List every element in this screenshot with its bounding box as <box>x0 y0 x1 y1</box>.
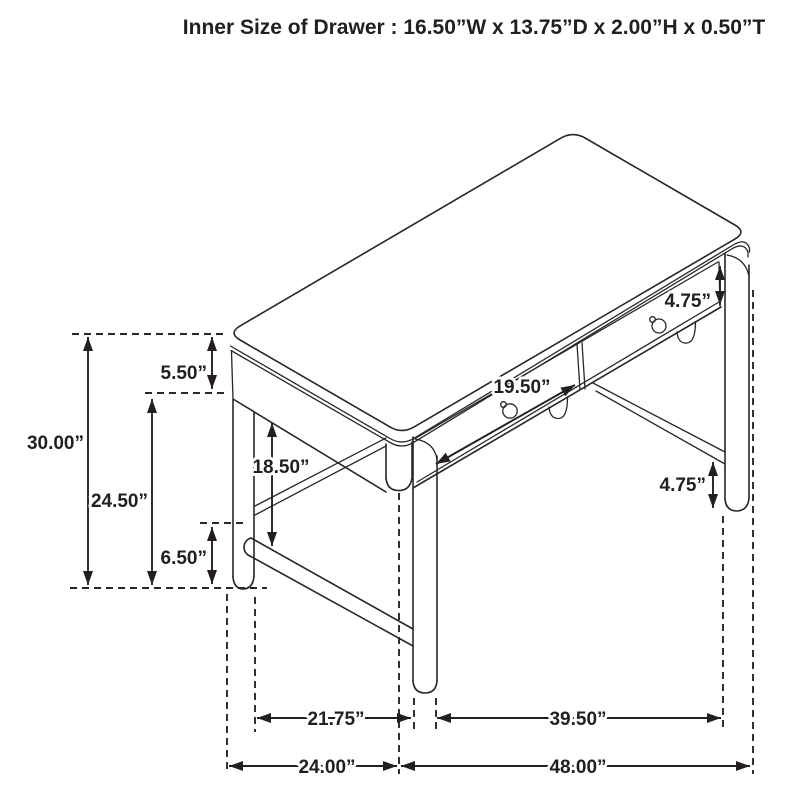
arrowhead-icon <box>147 399 157 413</box>
dimension-label-front-leg-span: 39.50” <box>549 709 606 730</box>
dimension-label-leg-clearance: 18.50” <box>252 457 309 478</box>
front-corner-post <box>386 442 412 491</box>
arrowhead-icon <box>257 713 271 723</box>
arrowhead-icon <box>436 453 451 464</box>
arrowhead-icon <box>383 761 397 771</box>
arrowhead-icon <box>83 337 93 351</box>
arrowhead-icon <box>229 761 243 771</box>
dimension-overall-width: 48.00” <box>401 757 750 778</box>
front-right-leg-foot <box>725 498 749 511</box>
arrowhead-icon <box>708 494 718 508</box>
dimension-side-leg-span: 21.75” <box>257 709 411 730</box>
dimension-leg-clearance: 18.50” <box>252 423 309 546</box>
dimension-overall-depth: 24.00” <box>229 757 397 778</box>
arrowhead-icon <box>207 375 217 389</box>
dimension-front-leg-span: 39.50” <box>437 709 721 730</box>
diagram-title: Inner Size of Drawer : 16.50”W x 13.75”D… <box>183 16 766 39</box>
arrowhead-icon <box>397 713 411 723</box>
dimension-label-top-section-height: 5.50” <box>161 363 207 384</box>
right-drawer-knob-screw <box>650 317 656 323</box>
left-panel-edge <box>232 352 234 399</box>
arrowhead-icon <box>147 571 157 585</box>
dimension-overall-height: 30.00” <box>27 337 93 585</box>
dimension-label-stretcher-height: 6.50” <box>161 548 207 569</box>
dimension-stretcher-height: 6.50” <box>161 527 217 584</box>
dimension-label-drawer-front-width: 19.50” <box>493 377 550 398</box>
dimension-label-overall-height: 30.00” <box>27 433 84 454</box>
rear-leg-top-arc <box>549 397 568 419</box>
arrowhead-icon <box>736 761 750 771</box>
dimension-stretcher-floor-gap: 4.75” <box>660 462 718 508</box>
dimension-label-overall-depth: 24.00” <box>298 757 355 778</box>
left-side-stretcher-cap <box>244 538 251 556</box>
desk-line-drawing <box>231 135 750 693</box>
rear-left-leg <box>233 400 254 577</box>
left-drawer-knob-screw <box>501 402 507 408</box>
dimension-label-floor-to-apron-height: 24.50” <box>91 491 148 512</box>
arrowhead-icon <box>267 532 277 546</box>
front-left-leg <box>413 437 437 681</box>
dimension-floor-to-apron-height: 24.50” <box>91 399 157 585</box>
arrowhead-icon <box>437 713 451 723</box>
diagram-canvas: Inner Size of Drawer : 16.50”W x 13.75”D… <box>0 0 800 800</box>
arrowhead-icon <box>715 266 725 280</box>
arrowhead-icon <box>401 761 415 771</box>
arrowhead-icon <box>707 713 721 723</box>
desk-top-surface <box>234 135 741 431</box>
front-right-leg-shoulder <box>727 255 749 276</box>
arrowhead-icon <box>708 462 718 476</box>
dimension-top-section-height: 5.50” <box>161 337 217 389</box>
arrowhead-icon <box>83 571 93 585</box>
arrowhead-icon <box>207 570 217 584</box>
dimension-label-side-leg-span: 21.75” <box>307 709 364 730</box>
dimension-label-apron-height: 4.75” <box>665 291 711 312</box>
dimension-diagram: Inner Size of Drawer : 16.50”W x 13.75”D… <box>0 0 800 800</box>
dimension-label-stretcher-floor-gap: 4.75” <box>660 475 706 496</box>
arrowhead-icon <box>207 337 217 351</box>
drawer-divider-left <box>577 344 580 390</box>
left-side-stretcher <box>250 538 413 646</box>
arrowhead-icon <box>207 527 217 541</box>
front-left-leg-shoulder <box>415 439 437 459</box>
left-drawer-knob <box>503 404 517 418</box>
right-side-stretcher <box>593 383 725 464</box>
front-right-leg <box>725 253 749 499</box>
dimension-label-overall-width: 48.00” <box>549 757 606 778</box>
front-left-leg-foot <box>413 681 437 693</box>
